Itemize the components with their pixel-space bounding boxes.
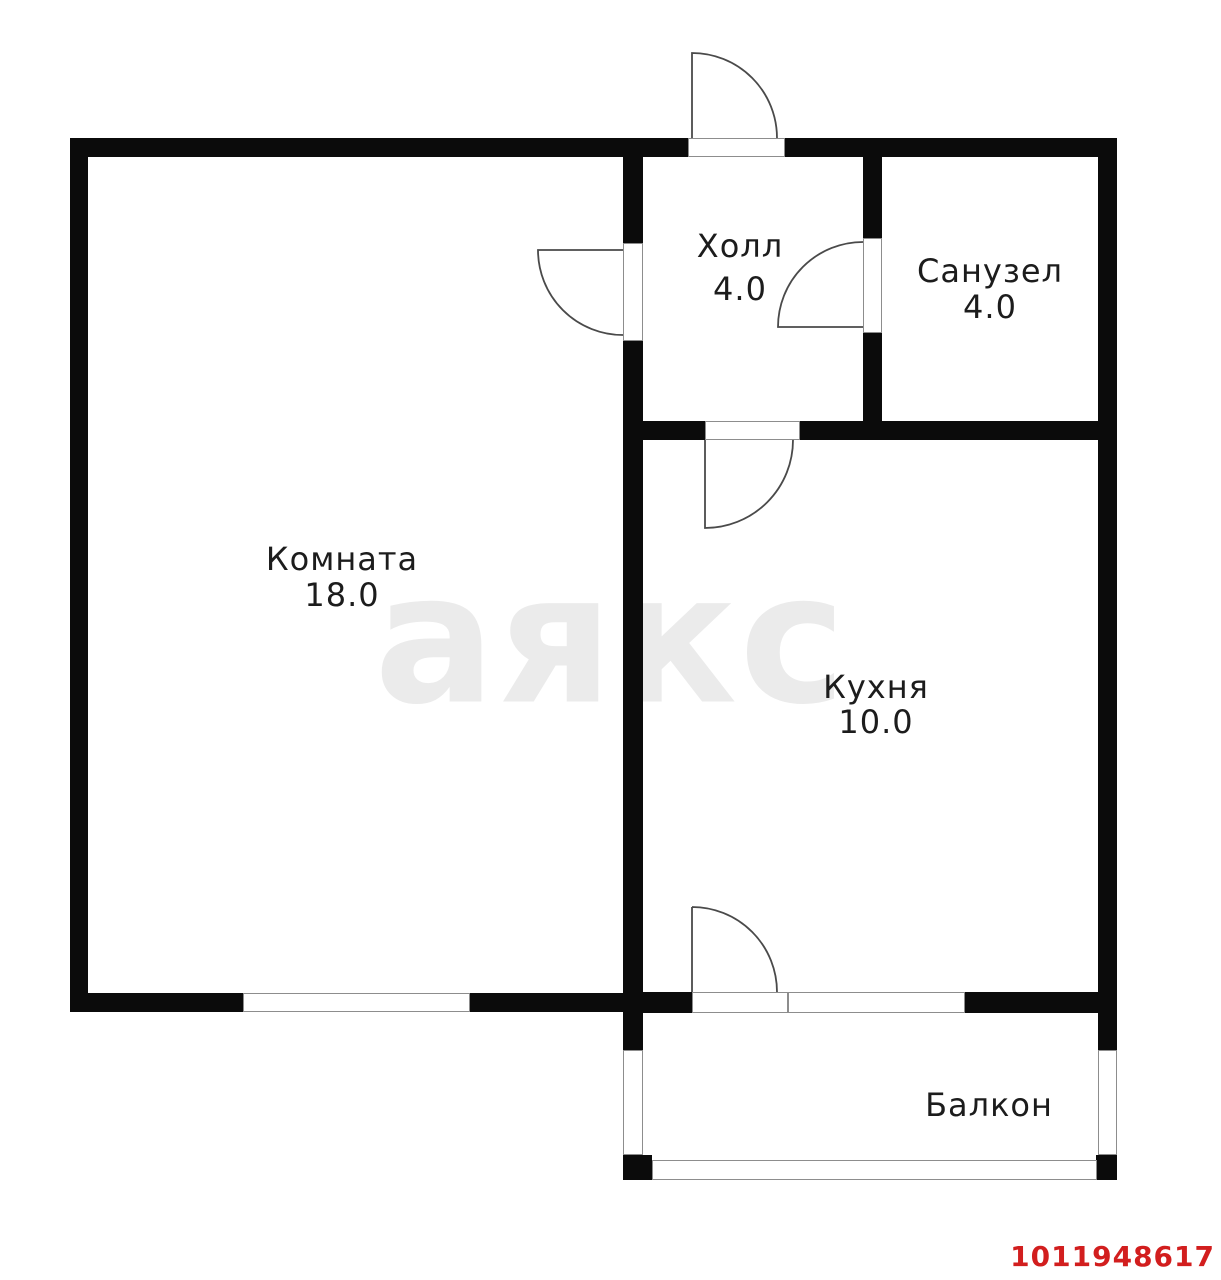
room-area-kitchen: 10.0 [838, 703, 913, 741]
entrance-door-swing [692, 53, 777, 138]
room-label-balcony: Балкон [925, 1086, 1053, 1124]
room-label-living: Комната [266, 540, 418, 578]
room-area-living: 18.0 [304, 576, 379, 614]
room-label-bathroom: Санузел [917, 252, 1063, 290]
room-area-bathroom: 4.0 [963, 288, 1017, 326]
balcony-door-swing [692, 907, 777, 992]
bathroom-door-swing [778, 242, 863, 327]
listing-id: 1011948617 [1010, 1240, 1215, 1273]
room-area-hall: 4.0 [713, 270, 767, 308]
room-label-hall: Холл [697, 227, 783, 265]
kitchen-door-swing [705, 440, 793, 528]
room-label-kitchen: Кухня [823, 668, 929, 706]
room-door-swing [538, 250, 623, 335]
floor-plan: аякс Комната 18.0 Холл 4.0 Санузел 4.0 [0, 0, 1221, 1280]
